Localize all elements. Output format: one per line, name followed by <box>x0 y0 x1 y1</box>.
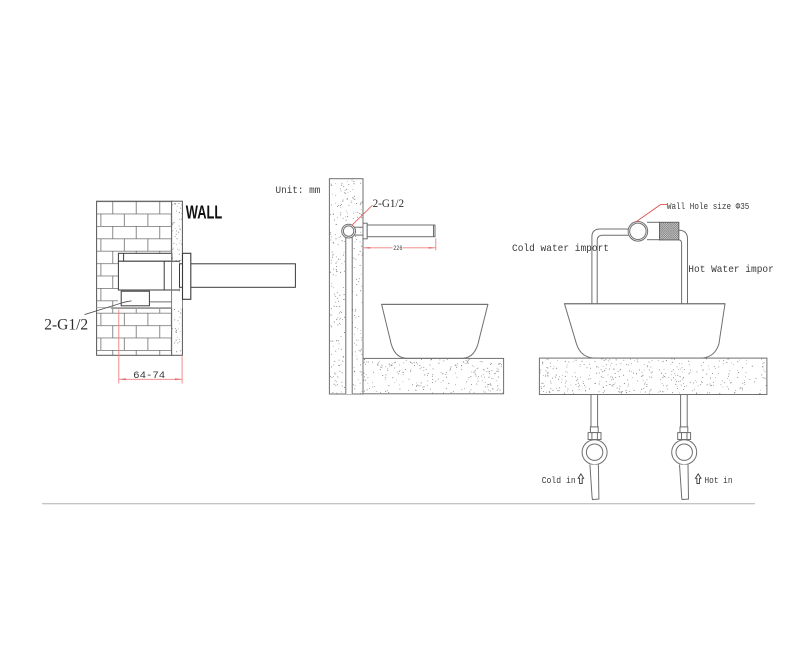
svg-text:2-G1/2: 2-G1/2 <box>373 198 405 210</box>
svg-text:Unit: mm: Unit: mm <box>276 185 321 197</box>
svg-text:Cold in: Cold in <box>542 476 576 486</box>
svg-text:226: 226 <box>393 245 403 252</box>
svg-text:Cold water import: Cold water import <box>512 243 609 255</box>
svg-text:WALL: WALL <box>186 203 223 223</box>
svg-text:2-G1/2: 2-G1/2 <box>44 317 88 334</box>
svg-text:Hot in: Hot in <box>705 476 733 486</box>
svg-text:64-74: 64-74 <box>133 370 165 382</box>
svg-text:Wall Hole size Φ35: Wall Hole size Φ35 <box>667 202 750 212</box>
svg-text:Hot Water impor: Hot Water impor <box>688 264 774 276</box>
